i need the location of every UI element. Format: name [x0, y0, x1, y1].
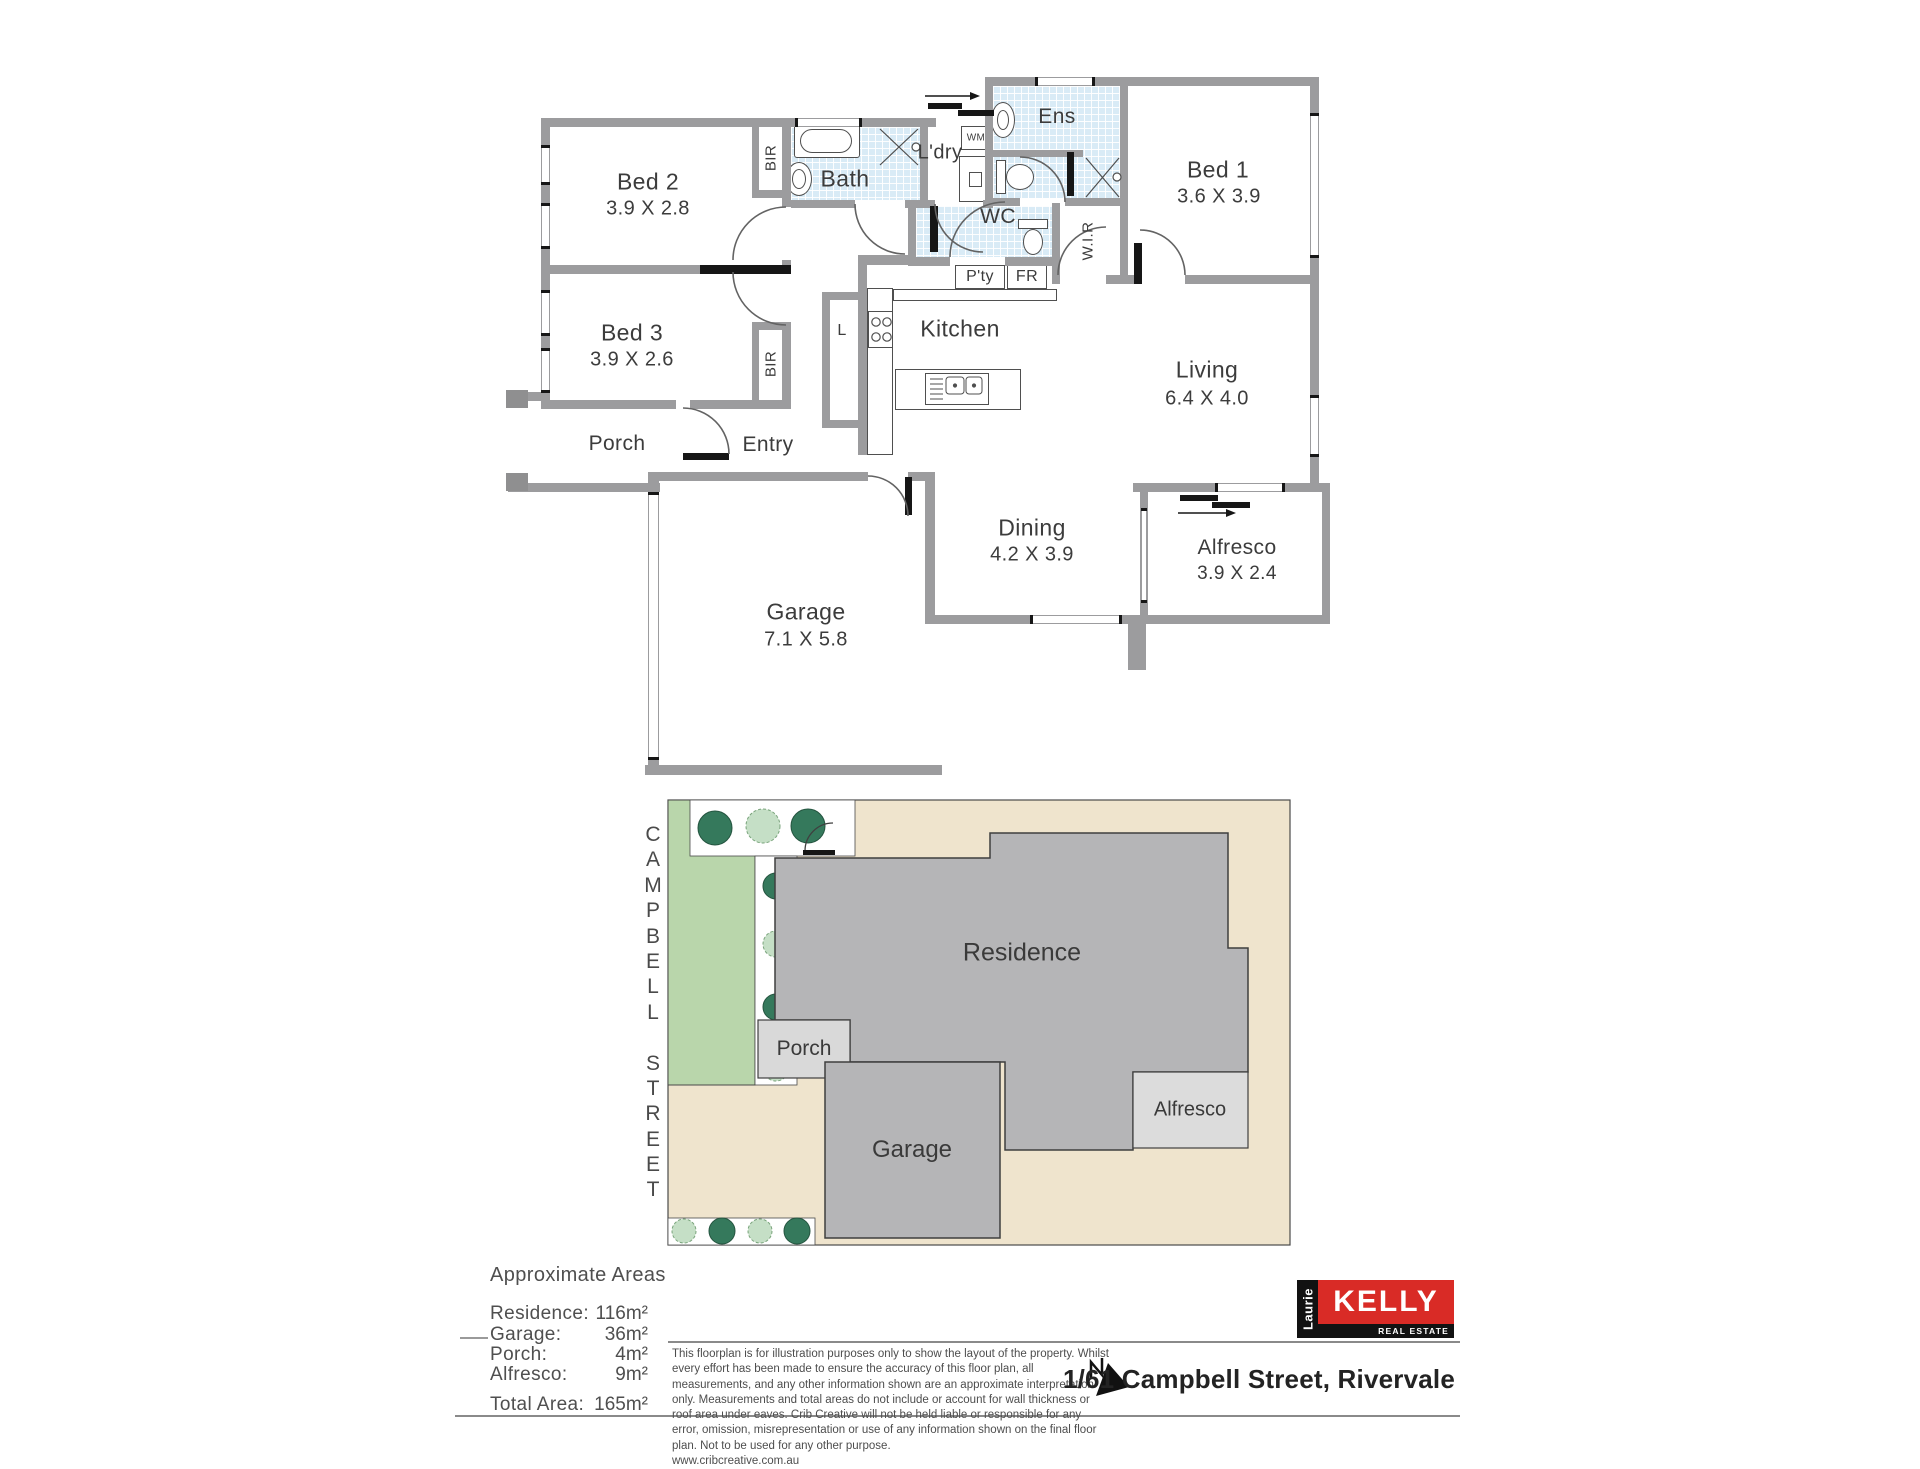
ens-toilet-bowl	[1006, 164, 1034, 190]
window	[541, 145, 550, 185]
room-dims-bed1: 3.6 X 3.9	[1177, 186, 1261, 209]
wall	[1322, 492, 1330, 623]
street-letter: E	[646, 949, 660, 974]
window	[541, 348, 550, 393]
room-dims-dining: 4.2 X 3.9	[990, 544, 1074, 567]
window	[1310, 395, 1319, 457]
room-label-ldry: L'dry	[918, 142, 963, 165]
window	[1310, 113, 1319, 258]
porch-row-dash	[460, 1337, 488, 1339]
room-label-kitchen: Kitchen	[920, 316, 1000, 343]
closet-label-bir: BIR	[763, 351, 780, 377]
logo-laurie-strip: Laurie	[1297, 1280, 1318, 1338]
street-letter: M	[644, 873, 662, 898]
site-label-porch: Porch	[777, 1037, 832, 1061]
laundry-trough-bowl	[969, 172, 982, 187]
ens-toilet-tank	[996, 160, 1006, 194]
logo-kelly-text: KELLY	[1318, 1280, 1454, 1324]
room-label-living: Living	[1176, 357, 1239, 384]
room-dims-living: 6.4 X 4.0	[1165, 388, 1249, 411]
room-label-bath: Bath	[821, 166, 870, 193]
window	[1215, 483, 1285, 492]
street-letter: S	[646, 1051, 660, 1076]
site-label-garage: Garage	[872, 1136, 952, 1164]
kitchen-sink	[925, 373, 989, 405]
total-area-value: 165m²	[548, 1394, 648, 1416]
street-letter: E	[646, 1152, 660, 1177]
room-label-bed3: Bed 3	[601, 320, 663, 347]
wall	[1120, 86, 1128, 284]
kitchen-bench-top	[893, 289, 1057, 301]
wall	[508, 483, 660, 492]
room-label-alfresco: Alfresco	[1197, 536, 1276, 560]
bath-sink-bowl	[792, 169, 806, 189]
logo-realestate-text: REAL ESTATE	[1318, 1324, 1454, 1338]
room-label-dining: Dining	[998, 515, 1066, 542]
area-row-label: Porch:	[490, 1344, 547, 1366]
street-letter: T	[647, 1076, 660, 1101]
street-letter: A	[646, 847, 660, 872]
room-dims-alfresco: 3.9 X 2.4	[1197, 563, 1277, 585]
door-jamb	[930, 206, 938, 252]
room-label-bed2: Bed 2	[617, 169, 679, 196]
label-fridge: FR	[1016, 268, 1038, 286]
wall	[690, 400, 791, 409]
room-label-wc: WC	[980, 205, 1016, 229]
garage-door	[648, 492, 659, 760]
cooktop	[868, 311, 893, 348]
wall	[822, 420, 866, 428]
area-row-value: 9m²	[548, 1364, 648, 1386]
street-letter: B	[646, 924, 660, 949]
ens-sink-bowl	[997, 110, 1009, 130]
bathtub-inner	[800, 129, 852, 153]
label-pantry: P'ty	[966, 268, 994, 286]
wall	[1052, 203, 1060, 284]
wall	[791, 200, 855, 208]
room-label-garage: Garage	[766, 599, 845, 626]
street-letter: E	[646, 1127, 660, 1152]
wall	[1185, 275, 1319, 284]
site-label-alfresco: Alfresco	[1154, 1099, 1226, 1122]
room-label-entry: Entry	[742, 433, 793, 457]
site-plan	[668, 800, 1290, 1245]
wall	[782, 325, 791, 408]
door-jamb	[905, 477, 912, 515]
logo-laurie-text: Laurie	[1300, 1288, 1315, 1330]
street-letter: R	[645, 1101, 660, 1126]
window	[541, 203, 550, 249]
area-row-value: 116m²	[548, 1303, 648, 1325]
site-label-residence: Residence	[963, 939, 1081, 968]
divider-line-top	[668, 1341, 1460, 1343]
wc-toilet-bowl	[1023, 229, 1043, 255]
wall	[752, 322, 759, 408]
window	[795, 118, 862, 127]
wall	[985, 86, 993, 205]
window	[1030, 615, 1122, 624]
door-jamb	[1067, 152, 1074, 196]
wall	[752, 118, 759, 198]
areas-heading: Approximate Areas	[490, 1264, 666, 1287]
room-dims-bed2: 3.9 X 2.8	[606, 198, 690, 221]
entry-door-leaf	[683, 453, 729, 460]
window	[1035, 77, 1095, 86]
room-label-porch: Porch	[589, 432, 646, 456]
wall	[1005, 257, 1060, 266]
wall	[925, 472, 935, 624]
wall	[653, 472, 868, 481]
porch-pillar	[506, 390, 528, 408]
wall	[541, 400, 676, 409]
window	[541, 290, 550, 336]
street-letter: T	[647, 1177, 660, 1202]
room-dims-bed3: 3.9 X 2.6	[590, 349, 674, 372]
wall	[908, 200, 916, 266]
closet-label-bir: BIR	[763, 145, 780, 171]
wall	[752, 190, 791, 198]
door-jamb	[1134, 243, 1142, 284]
sliding-door-glass	[1141, 508, 1147, 603]
area-row-value: 4m²	[548, 1344, 648, 1366]
wall	[541, 118, 936, 127]
street-letter: L	[647, 1000, 659, 1025]
label-wm: WM	[967, 133, 986, 144]
agency-logo: Laurie KELLY REAL ESTATE	[1297, 1280, 1454, 1338]
street-letter: P	[646, 898, 660, 923]
room-label-bed1: Bed 1	[1187, 157, 1249, 184]
wall	[645, 765, 942, 775]
street-letter: C	[645, 822, 660, 847]
room-label-ens: Ens	[1038, 105, 1075, 129]
sliding-door-bar	[958, 110, 994, 116]
street-letter: L	[647, 974, 659, 999]
wc-toilet-tank	[1018, 219, 1048, 229]
area-row-value: 36m²	[548, 1324, 648, 1346]
room-label-wir: W.I.R	[1080, 222, 1097, 261]
wall	[822, 292, 830, 428]
street-label: CAMPBELL STREET	[636, 822, 670, 1203]
wall-black	[700, 265, 791, 274]
wall	[822, 292, 866, 300]
porch-pillar	[506, 473, 528, 491]
sliding-door-bar	[1180, 495, 1218, 501]
label-linen: L	[837, 322, 846, 340]
sliding-door-bar	[1212, 502, 1250, 508]
room-dims-garage: 7.1 X 5.8	[764, 629, 848, 652]
property-address: 1/61 Campbell Street, Rivervale	[1000, 1364, 1455, 1395]
wall	[1065, 198, 1128, 206]
sliding-door-bar	[928, 103, 962, 109]
